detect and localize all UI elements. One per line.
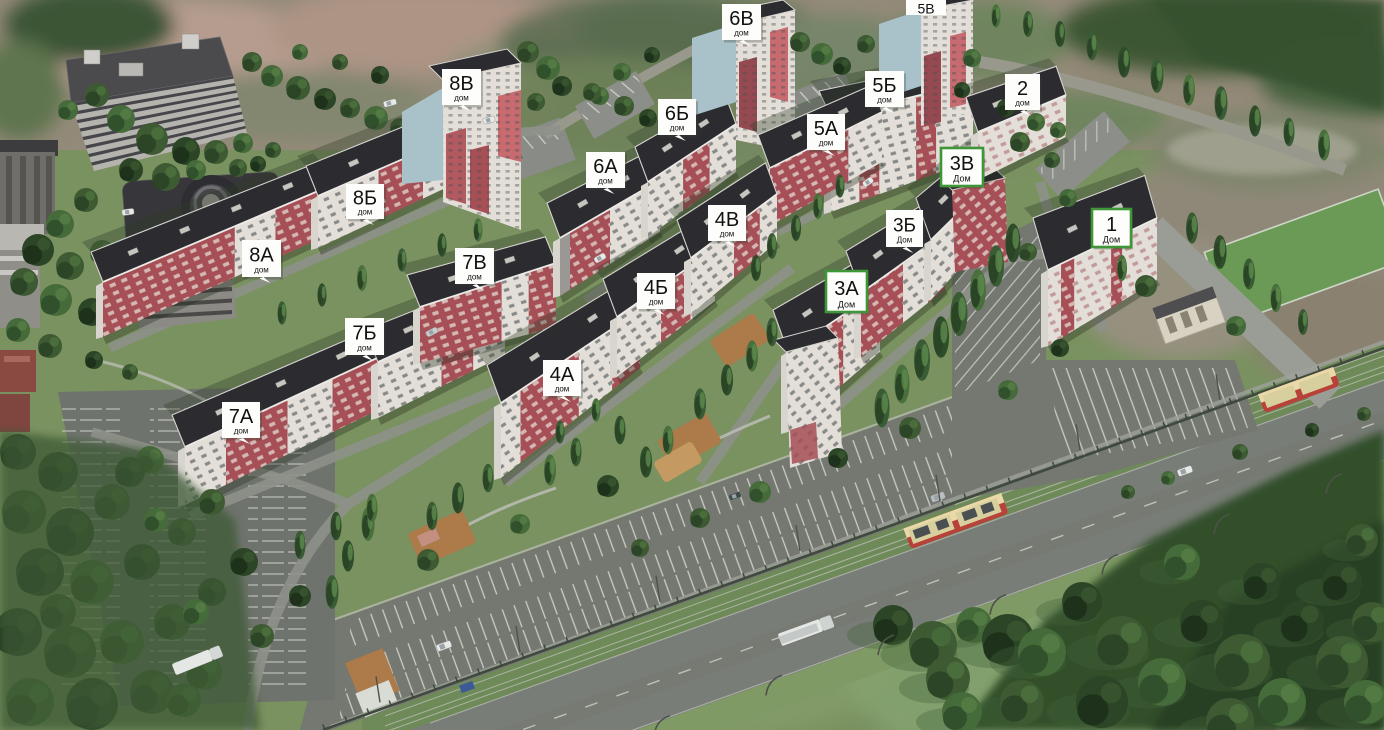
svg-text:Дом: Дом [953,174,970,184]
svg-text:дом: дом [234,427,249,436]
svg-text:дом: дом [877,96,892,105]
svg-text:дом: дом [734,29,749,38]
svg-text:3А: 3А [834,278,859,300]
svg-text:6А: 6А [593,156,618,178]
svg-text:дом: дом [357,344,372,353]
svg-text:6Б: 6Б [665,103,689,125]
svg-text:дом: дом [467,273,482,282]
svg-text:8Б: 8Б [353,187,377,209]
svg-text:4Б: 4Б [644,277,668,299]
svg-text:дом: дом [254,266,269,275]
svg-text:дом: дом [720,230,735,239]
svg-text:дом: дом [1015,99,1030,108]
svg-text:дом: дом [598,177,613,186]
svg-text:Дом: Дом [897,236,912,245]
svg-text:3В: 3В [950,153,974,175]
svg-text:8А: 8А [249,244,274,266]
svg-text:дом: дом [555,385,570,394]
svg-text:4А: 4А [550,364,575,386]
svg-text:7В: 7В [462,252,486,274]
svg-text:7А: 7А [229,406,254,428]
svg-text:5Б: 5Б [872,75,896,97]
svg-text:дом: дом [670,124,685,133]
svg-text:5А: 5А [814,118,839,140]
svg-text:2: 2 [1017,78,1028,100]
svg-text:3Б: 3Б [893,215,916,236]
svg-text:дом: дом [649,298,664,307]
svg-text:Дом: Дом [838,300,855,310]
svg-text:6В: 6В [729,8,753,30]
svg-text:1: 1 [1106,214,1117,236]
svg-text:8В: 8В [449,73,473,95]
svg-text:дом: дом [454,94,469,103]
svg-text:дом: дом [819,139,834,148]
svg-text:7Б: 7Б [352,322,376,344]
svg-text:5В: 5В [917,1,934,17]
svg-text:4В: 4В [715,209,739,231]
svg-text:Дом: Дом [1103,235,1120,245]
svg-text:дом: дом [358,208,373,217]
